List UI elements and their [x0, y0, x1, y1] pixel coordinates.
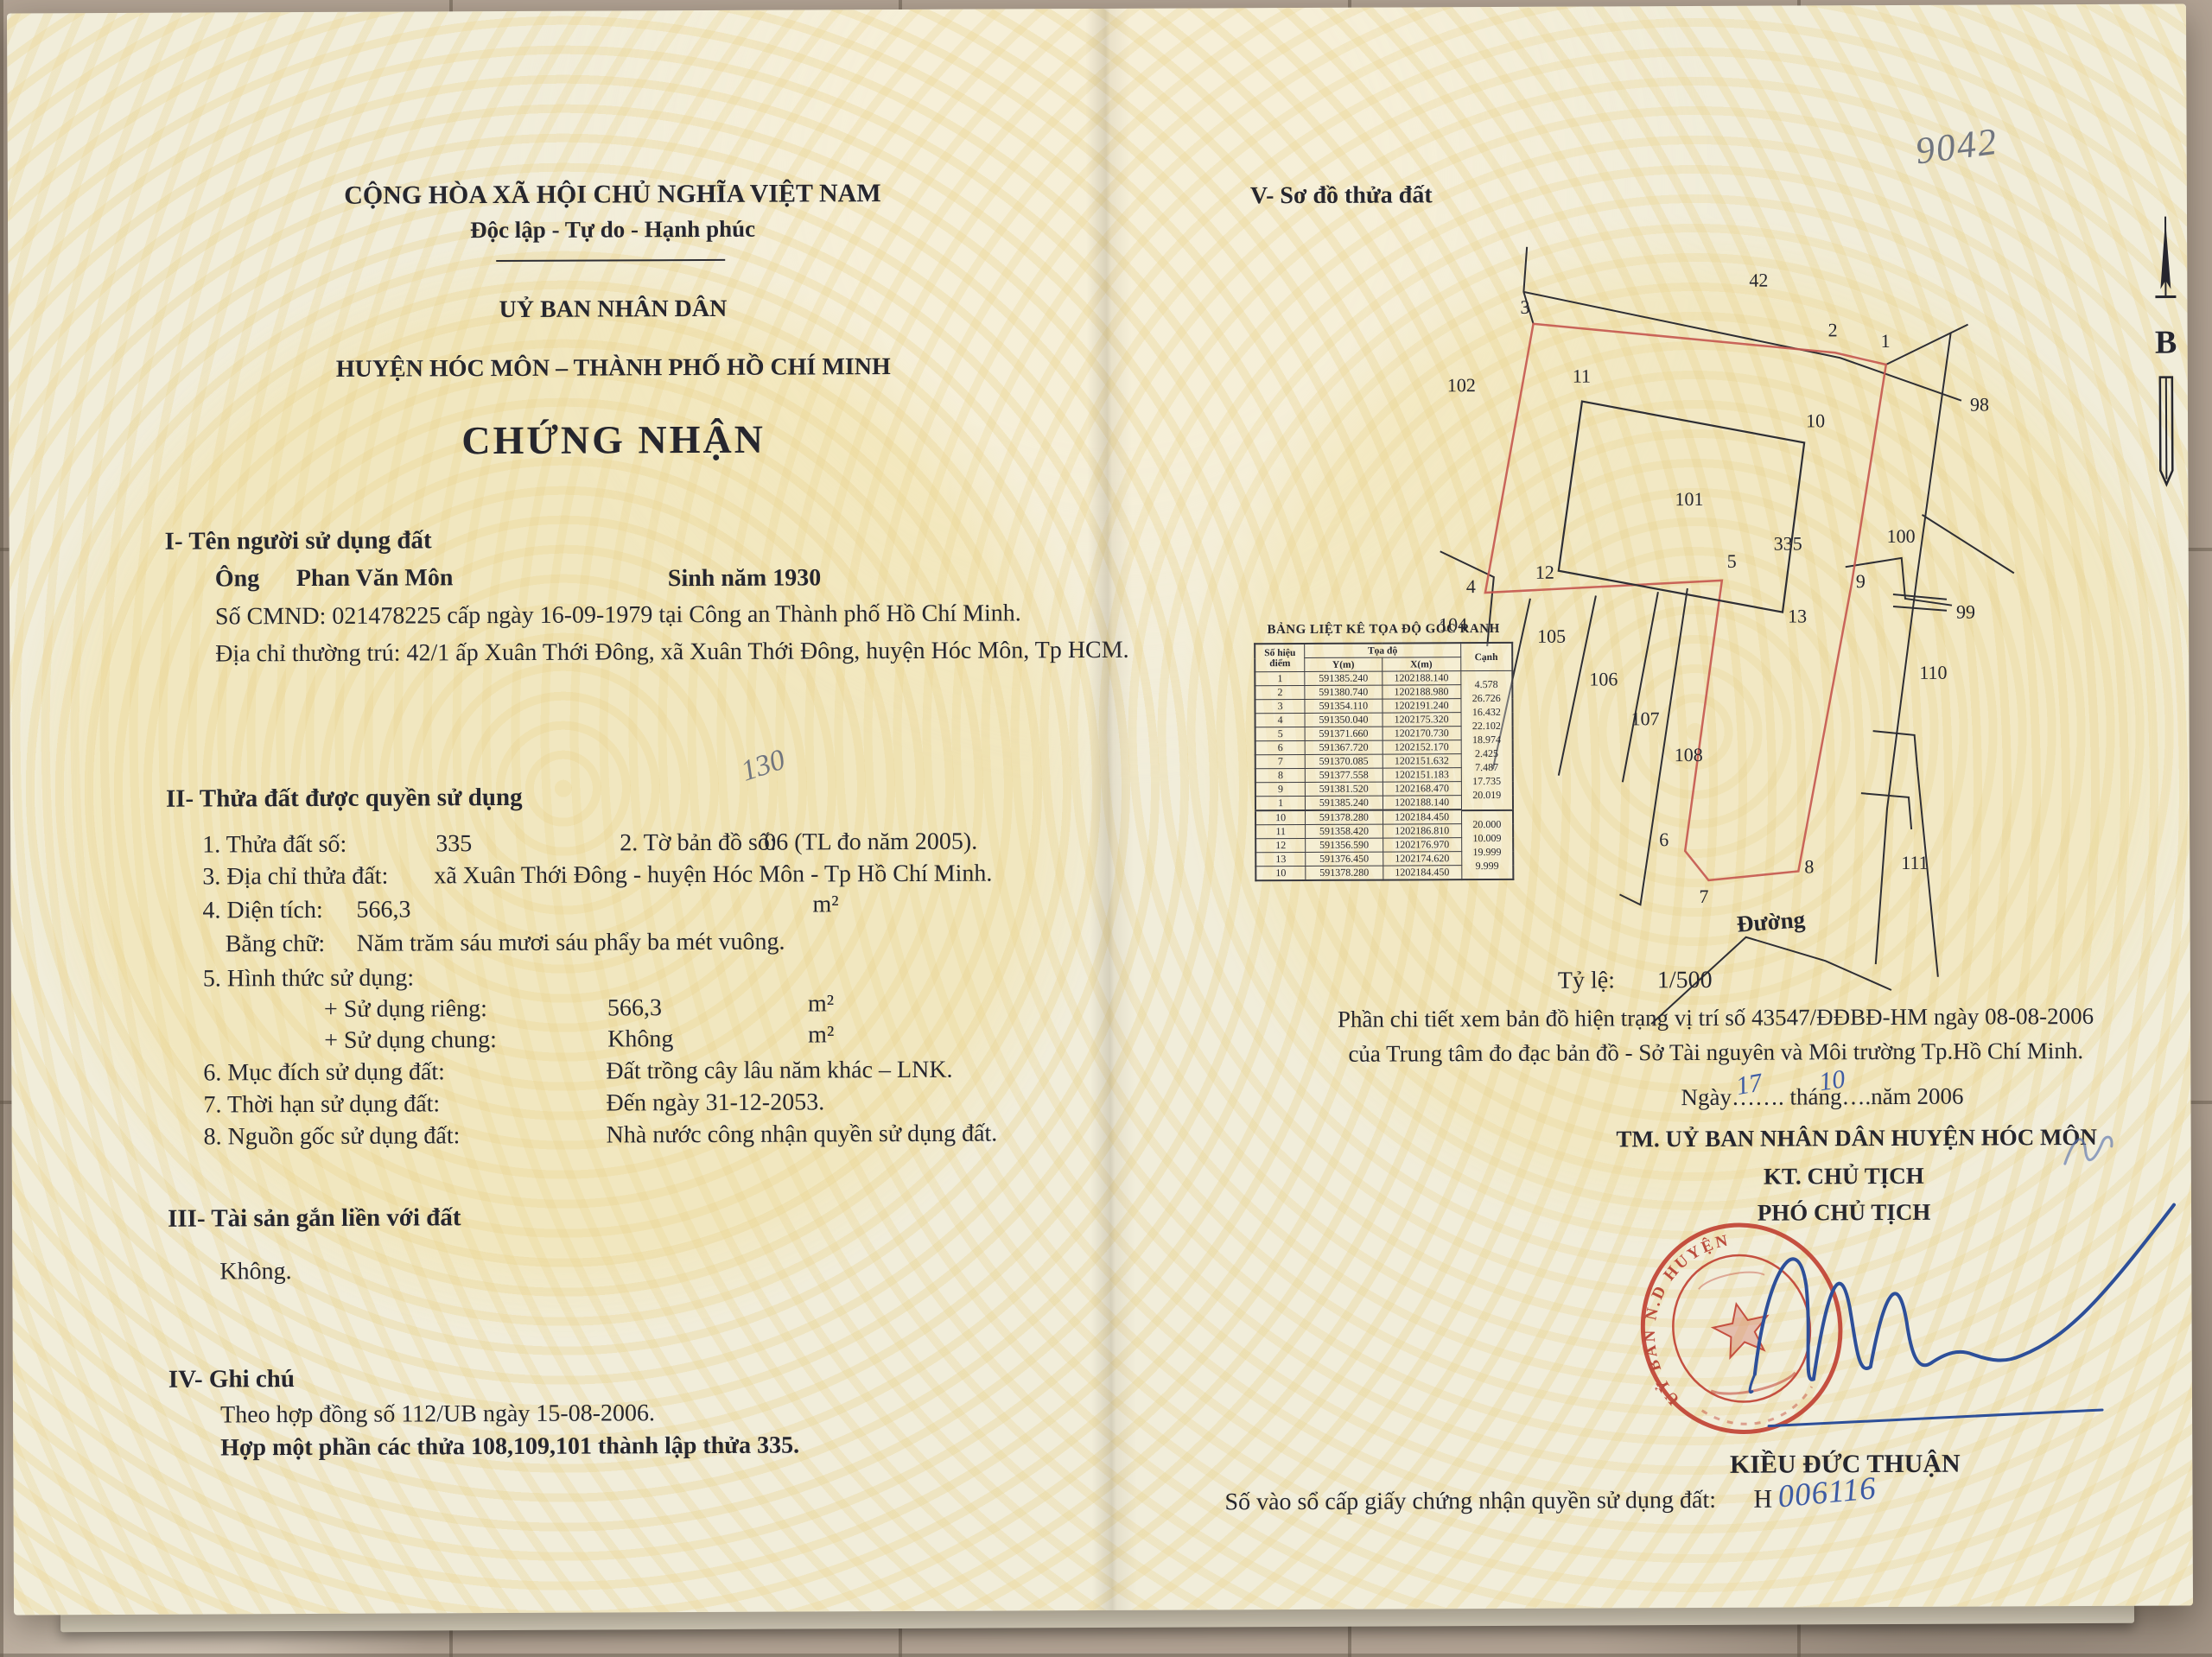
north-arrow-needle [2160, 220, 2171, 289]
owner-birth: Sinh năm 1930 [668, 564, 822, 593]
handwritten-day: 17 [1734, 1068, 1765, 1101]
coord-cell: 591380.740 [1305, 685, 1382, 699]
coord-cell: 1202188.980 [1382, 685, 1460, 699]
handwritten-month: 10 [1817, 1064, 1847, 1097]
map-label-102: 102 [1447, 374, 1476, 396]
coord-cell: 1202170.730 [1382, 727, 1461, 740]
motto-underline [496, 259, 725, 262]
edge-length-value: 17.735 [1461, 775, 1511, 788]
coord-cell: 1202184.450 [1382, 866, 1461, 880]
coord-cell: 7 [1255, 754, 1306, 768]
national-motto-line2: Độc lập - Tự do - Hạnh phúc [224, 214, 1001, 244]
coord-cell: 9 [1255, 782, 1306, 796]
handwritten-initials [2056, 1127, 2126, 1179]
map-label-8: 8 [1804, 855, 1814, 877]
coord-cell: 1202168.470 [1382, 782, 1461, 796]
map-label-101: 101 [1675, 488, 1703, 510]
area-value: 566,3 [356, 896, 410, 924]
map-label-3: 3 [1520, 296, 1529, 318]
section4-heading: IV- Ghi chú [168, 1365, 295, 1394]
handwritten-corner-number: 9042 [1913, 119, 2001, 174]
note-line1: Theo hợp đồng số 112/UB ngày 15-08-2006. [220, 1400, 655, 1429]
map-label-107: 107 [1630, 708, 1659, 729]
term-label: 7. Thời hạn sử dụng đất: [203, 1090, 440, 1119]
neighbor-parcel-lines [1439, 244, 2016, 1025]
detail-reference-line2: của Trung tâm đo đạc bản đồ - Sở Tài ngu… [1238, 1037, 2193, 1068]
signing-authority-line: TM. UỶ BAN NHÂN DÂN HUYỆN HÓC MÔN [1611, 1124, 2103, 1152]
coord-cell: 6 [1255, 740, 1306, 754]
area-words-label: Bằng chữ: [226, 930, 326, 959]
col-x-header: X(m) [1382, 657, 1460, 671]
map-sheet-value: 06 (TL đo năm 2005). [764, 828, 977, 857]
origin-value: Nhà nước công nhận quyền sử dụng đất. [607, 1121, 998, 1150]
coord-cell: 10 [1255, 810, 1306, 825]
map-label-10: 10 [1806, 409, 1825, 431]
map-label-11: 11 [1573, 365, 1591, 387]
col-edge-header: Cạnh [1460, 643, 1512, 671]
coord-cell: 1202175.320 [1382, 713, 1461, 727]
section3-heading: III- Tài sản gắn liền với đất [168, 1203, 461, 1233]
registry-prefix: H [1753, 1485, 1772, 1514]
coord-cell: 1202152.170 [1382, 740, 1461, 754]
map-label-105: 105 [1537, 625, 1566, 647]
map-label-12: 12 [1535, 562, 1554, 583]
private-use-unit: m² [808, 990, 834, 1018]
coord-cell: 591358.420 [1306, 824, 1382, 838]
map-label-335: 335 [1774, 532, 1802, 554]
coord-cell: 591350.040 [1305, 713, 1382, 727]
coord-cell: 591354.110 [1305, 699, 1382, 713]
coord-cell: 591377.558 [1305, 768, 1382, 782]
area-label: 4. Diện tích: [202, 897, 322, 925]
map-label-110: 110 [1919, 662, 1947, 683]
coord-cell: 8 [1255, 768, 1306, 782]
map-label-4: 4 [1466, 575, 1476, 597]
coord-cell: 1202186.810 [1382, 824, 1461, 838]
coord-cell: 1202174.620 [1382, 852, 1461, 866]
map-label-6: 6 [1659, 828, 1669, 850]
area-unit: m² [812, 891, 838, 918]
section3-value: Không. [219, 1258, 291, 1286]
map-sheet-label: 2. Tờ bản đồ số: [620, 829, 777, 858]
map-label-Đường: Đường [1736, 906, 1807, 937]
coord-cell: 591371.660 [1305, 727, 1382, 740]
map-label-100: 100 [1887, 525, 1916, 547]
map-label-42: 42 [1749, 270, 1768, 291]
coord-cell: 1 [1255, 796, 1306, 810]
north-label: B [2155, 325, 2177, 361]
coord-cell: 591381.520 [1306, 782, 1382, 796]
coord-cell: 5 [1255, 727, 1306, 740]
purpose-label: 6. Mục đích sử dụng đất: [203, 1058, 445, 1087]
owner-prefix: Ông [215, 565, 259, 593]
photo-of-land-certificate: { "left": { "motto1": "CỘNG HÒA XÃ HỘI C… [0, 0, 2212, 1657]
signature-ink [1697, 1166, 2193, 1454]
edge-length-value: 20.019 [1462, 789, 1512, 802]
registry-number-label: Số vào sổ cấp giấy chứng nhận quyền sử d… [1224, 1487, 1716, 1516]
coord-cell: 1202151.183 [1382, 768, 1461, 782]
map-label-5: 5 [1727, 550, 1737, 572]
edge-length-value: 4.578 [1461, 678, 1511, 691]
coord-cell: 1202151.632 [1382, 754, 1461, 768]
map-label-108: 108 [1675, 744, 1703, 765]
coord-cell: 11 [1255, 824, 1306, 838]
coordinate-table-grid: Số hiệuđiểm Tọa độ Cạnh Y(m) X(m) 159138… [1254, 642, 1514, 881]
map-label-106: 106 [1589, 668, 1618, 689]
issuer-line2: HUYỆN HÓC MÔN – THÀNH PHỐ HỒ CHÍ MINH [225, 352, 1002, 384]
coord-cell: 591385.240 [1306, 796, 1382, 810]
section2-heading: II- Thửa đất được quyền sử dụng [166, 784, 523, 814]
map-label-2: 2 [1828, 319, 1838, 340]
owner-id-line: Số CMND: 021478225 cấp ngày 16-09-1979 t… [215, 600, 1021, 631]
scale-value: 1/500 [1657, 967, 1713, 994]
edge-length-column: 4.57826.72616.43222.10218.9742.4257.4871… [1460, 670, 1513, 879]
certificate-title: CHỨNG NHẬN [225, 415, 1002, 464]
private-use-label: + Sử dụng riêng: [324, 995, 487, 1024]
coord-cell: 13 [1255, 852, 1306, 866]
coord-cell: 1202188.140 [1382, 796, 1461, 810]
center-fold-shadow [1085, 9, 1137, 1610]
map-label-13: 13 [1788, 605, 1807, 626]
map-label-7: 7 [1699, 886, 1708, 907]
coord-cell: 1202176.970 [1382, 838, 1461, 852]
coord-cell: 591378.280 [1306, 866, 1382, 880]
handwritten-note-130: 130 [737, 744, 789, 789]
col-coord-header: Tọa độ [1305, 643, 1460, 657]
edge-length-value: 9.999 [1462, 860, 1512, 873]
common-use-unit: m² [808, 1021, 834, 1049]
coord-cell: 1 [1255, 671, 1305, 685]
certificate-paper: CỘNG HÒA XÃ HỘI CHỦ NGHĨA VIỆT NAM Độc l… [7, 4, 2193, 1616]
coord-cell: 3 [1255, 699, 1305, 713]
coord-cell: 1202188.140 [1382, 671, 1460, 685]
registry-number-handwritten: 006116 [1777, 1470, 1878, 1515]
section1-heading: I- Tên người sử dụng đất [165, 526, 432, 556]
area-words-value: Năm trăm sáu mươi sáu phẩy ba mét vuông. [357, 929, 785, 958]
term-value: Đến ngày 31-12-2053. [606, 1089, 824, 1117]
map-label-99: 99 [1956, 601, 1975, 623]
coord-cell: 12 [1255, 838, 1306, 852]
edge-length-value: 10.009 [1462, 832, 1512, 845]
map-section-heading: V- Sơ đồ thửa đất [1250, 181, 1433, 210]
coord-cell: 591385.240 [1305, 671, 1382, 685]
coord-cell: 591378.280 [1306, 810, 1382, 825]
col-point-header: Số hiệuđiểm [1255, 644, 1305, 672]
edge-length-value: 7.487 [1461, 761, 1511, 774]
note-line2: Hợp một phần các thửa 108,109,101 thành … [220, 1432, 799, 1463]
parcel-address-label: 3. Địa chỉ thửa đất: [202, 863, 388, 892]
map-label-98: 98 [1970, 394, 1989, 416]
map-label-111: 111 [1901, 852, 1928, 873]
coord-cell: 1202191.240 [1382, 699, 1461, 713]
edge-length-value: 20.000 [1462, 818, 1512, 831]
detail-reference-line1: Phần chi tiết xem bản đồ hiện trạng vị t… [1238, 1002, 2193, 1033]
edge-length-value: 16.432 [1461, 706, 1511, 719]
purpose-value: Đất trồng cây lâu năm khác – LNK. [606, 1057, 952, 1086]
edge-length-value: 26.726 [1461, 692, 1511, 705]
map-label-9: 9 [1856, 570, 1866, 592]
owner-name: Phan Văn Môn [296, 564, 454, 593]
edge-length-value: 19.999 [1462, 846, 1512, 859]
coordinate-table: BẢNG LIỆT KÊ TỌA ĐỘ GÓC RANH Số hiệuđiểm… [1254, 622, 1514, 881]
cadastral-sketch: 1024232198111010110012134991041051061071… [1408, 203, 2102, 1026]
issuer-line1: UỶ BAN NHÂN DÂN [224, 294, 1001, 325]
parcel-address-value: xã Xuân Thới Đông - huyện Hóc Môn - Tp H… [434, 860, 992, 891]
use-form-label: 5. Hình thức sử dụng: [203, 964, 414, 993]
edge-length-value: 22.102 [1461, 720, 1511, 733]
edge-length-value: 18.974 [1461, 733, 1511, 746]
private-use-value: 566,3 [607, 994, 662, 1022]
common-use-label: + Sử dụng chung: [324, 1026, 497, 1055]
map-label-1: 1 [1881, 330, 1891, 352]
coord-cell: 4 [1255, 713, 1306, 727]
coord-cell: 2 [1255, 685, 1305, 699]
coord-cell: 591356.590 [1306, 838, 1382, 852]
scale-label: Tỷ lệ: [1558, 967, 1615, 994]
coord-cell: 591376.450 [1306, 852, 1382, 866]
common-use-value: Không [607, 1025, 673, 1053]
coord-cell: 591370.085 [1305, 754, 1382, 768]
parcel-number-label: 1. Thửa đất số: [202, 831, 346, 860]
national-motto-line1: CỘNG HÒA XÃ HỘI CHỦ NGHĨA VIỆT NAM [224, 178, 1001, 211]
coord-cell: 10 [1255, 866, 1306, 880]
col-y-header: Y(m) [1305, 657, 1382, 671]
parcel-number-value: 335 [435, 830, 472, 858]
coord-cell: 591367.720 [1305, 740, 1382, 754]
edge-length-value: 2.425 [1461, 747, 1511, 760]
north-arrow: B [2135, 213, 2193, 498]
coord-cell: 1202184.450 [1382, 809, 1461, 824]
origin-label: 8. Nguồn gốc sử dụng đất: [204, 1122, 461, 1151]
owner-address-line: Địa chỉ thường trú: 42/1 ấp Xuân Thới Đô… [215, 637, 1129, 669]
coordinate-table-title: BẢNG LIỆT KÊ TỌA ĐỘ GÓC RANH [1254, 622, 1513, 638]
